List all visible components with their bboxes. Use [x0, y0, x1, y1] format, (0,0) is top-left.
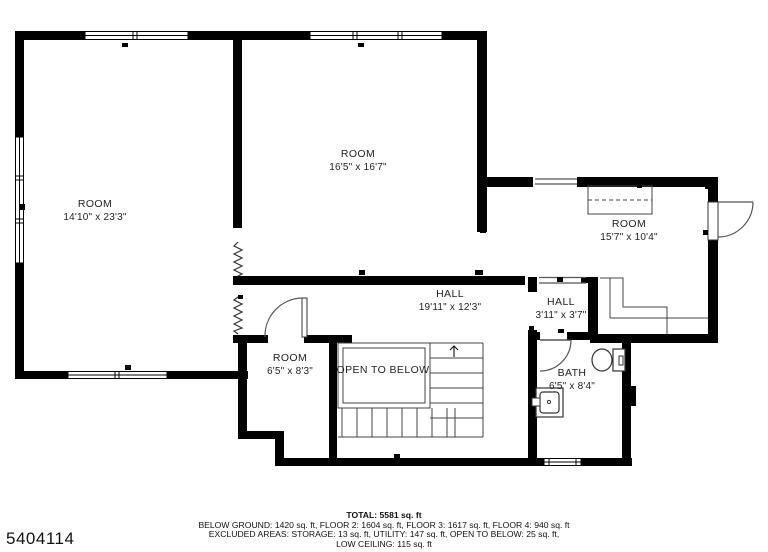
stairs-down-lines	[600, 278, 708, 334]
stair-direction-arrow-icon	[450, 346, 458, 357]
room-label-left: ROOM 14'10" x 23'3"	[63, 198, 126, 224]
closet-icon	[588, 186, 652, 214]
floorplan-page: ROOM 14'10" x 23'3" ROOM 16'5" x 16'7" R…	[0, 0, 768, 552]
low-ceiling-line: LOW CEILING: 115 sq. ft	[0, 540, 768, 550]
toilet-icon	[592, 349, 625, 371]
walls	[15, 31, 718, 466]
area-summary: TOTAL: 5581 sq. ft BELOW GROUND: 1420 sq…	[0, 511, 768, 549]
floorplan-drawing	[0, 0, 768, 552]
small-hall-label: HALL 3'11" x 3'7"	[536, 296, 587, 322]
room-label-right: ROOM 15'7" x 10'4"	[600, 218, 657, 244]
small-room-label: ROOM 6'5" x 8'3"	[267, 352, 313, 378]
staircase	[338, 343, 483, 437]
tick-marks	[19, 43, 710, 458]
open-to-below-label: OPEN TO BELOW	[337, 364, 430, 376]
window-icon	[16, 32, 582, 466]
break-line-icon	[234, 242, 242, 334]
listing-id: 5404114	[6, 529, 74, 549]
hall-label: HALL 19'11" x 12'3"	[419, 288, 481, 314]
room-label-center: ROOM 16'5" x 16'7"	[329, 148, 386, 174]
opening-lines	[535, 179, 586, 283]
bath-label: BATH 6'5" x 8'4"	[549, 367, 595, 393]
